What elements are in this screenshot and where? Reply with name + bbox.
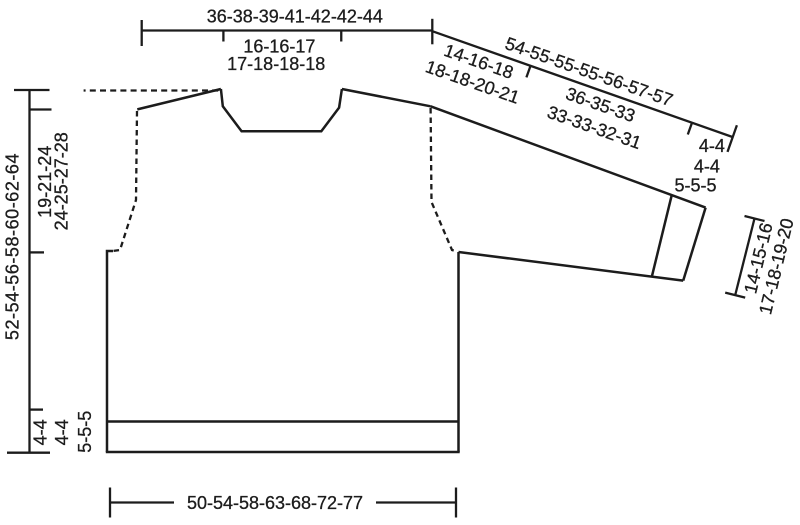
svg-text:5-5-5: 5-5-5: [75, 411, 95, 453]
svg-text:5-5-5: 5-5-5: [674, 176, 716, 196]
svg-text:4-4: 4-4: [699, 136, 725, 156]
svg-text:4-4: 4-4: [30, 419, 50, 445]
svg-text:4-4: 4-4: [694, 156, 720, 176]
svg-text:52-54-56-58-60-62-64: 52-54-56-58-60-62-64: [3, 153, 23, 340]
svg-text:17-18-18-18: 17-18-18-18: [227, 54, 325, 74]
svg-text:36-38-39-41-42-42-44: 36-38-39-41-42-42-44: [207, 7, 383, 27]
svg-text:24-25-27-28: 24-25-27-28: [52, 132, 72, 230]
svg-text:50-54-58-63-68-72-77: 50-54-58-63-68-72-77: [187, 493, 363, 513]
svg-text:4-4: 4-4: [52, 419, 72, 445]
